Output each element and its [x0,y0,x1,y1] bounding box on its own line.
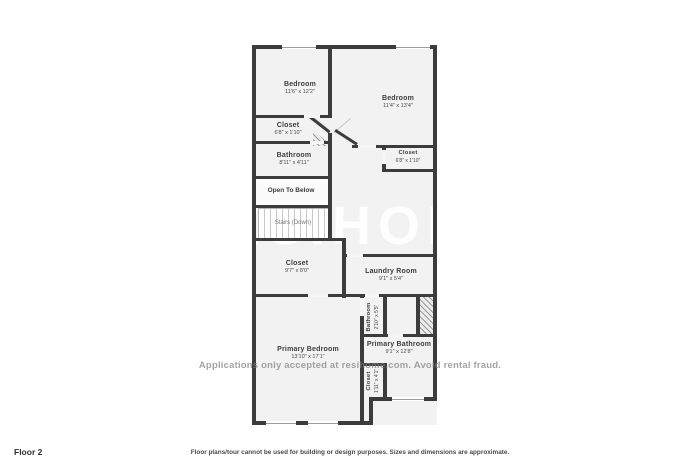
wall [252,176,332,179]
wall [383,294,387,337]
room-label-stairs: Stairs (Down) [275,220,311,228]
door-opening [310,141,324,144]
room-name: Laundry Room [365,267,417,276]
room-dims: 9'1" x 5'4" [365,276,417,283]
watermark-brand: RESIHOME [0,195,700,257]
wall [328,133,332,240]
door-opening [308,294,328,297]
room-label-laundry: Laundry Room 9'1" x 5'4" [365,267,417,283]
window [308,421,338,425]
room-label-closet-middle: Closet 9'7" x 8'0" [285,259,309,275]
room-dims: 6'8" x 1'10" [274,130,301,137]
wall [416,294,420,337]
room-dims: 6'8" x 1'10" [396,158,421,165]
room-dims: 9'1" x 12'8" [367,349,431,356]
room-label-primary-bathroom: Primary Bathroom 9'1" x 12'8" [367,340,431,356]
wall [382,169,437,172]
door-opening [304,115,320,118]
door-opening [365,294,379,297]
window [282,45,316,49]
watermark-fraud-notice: Applications only accepted at resihome.c… [0,360,700,371]
room-name: Closet [285,259,309,268]
wall [433,45,437,401]
wall [342,294,437,297]
window [392,397,424,401]
wall [328,45,332,115]
door-opening [388,334,403,337]
room-label-closet-upper-right: Closet 6'8" x 1'10" [396,150,421,164]
room-label-bathroom-upper: Bathroom 8'11" x 4'11" [277,151,312,167]
door-opening [347,254,363,257]
room-name: Closet [366,369,374,393]
room-label-bedroom-right: Bedroom 11'4" x 13'4" [382,94,414,110]
room-dims: 1'11" x 4'1" [374,369,381,393]
room-label-open-to-below: Open To Below [268,187,315,195]
room-label-closet-upper-left: Closet 6'8" x 1'10" [274,121,301,137]
room-name: Closet [396,150,421,158]
shaft-hatch-area [420,297,433,334]
room-name: Bedroom [382,94,414,103]
wall [342,238,346,298]
door-opening [358,145,376,148]
room-name: Bathroom [277,151,312,160]
room-dims: 11'6" x 12'2" [284,89,316,96]
room-label-bathroom-small: Bathroom 2'10" x 5'5" [366,303,380,332]
room-dims: 8'11" x 4'11" [277,160,312,167]
wall [252,205,332,208]
wall [252,115,332,118]
room-label-bedroom-left: Bedroom 11'6" x 12'2" [284,80,316,96]
room-name: Primary Bathroom [367,340,431,349]
wall [252,238,346,241]
wall [252,294,346,297]
wall-angled [334,129,357,146]
room-name: Primary Bedroom [277,345,339,354]
room-label-primary-bedroom: Primary Bedroom 13'10" x 17'1" [277,345,339,361]
room-dims: 2'10" x 5'5" [374,303,381,332]
room-name: Bathroom [366,303,374,332]
disclaimer-text: Floor plans/tour cannot be used for buil… [0,449,700,456]
floor-plan-page: RESIHOME [0,0,700,467]
room-dims: 11'4" x 13'4" [382,103,414,110]
window [396,45,430,49]
room-name: Bedroom [284,80,316,89]
door-opening [360,298,364,316]
window [266,421,296,425]
room-dims: 9'7" x 8'0" [285,268,309,275]
door-opening [382,150,386,164]
room-label-closet-primary: Closet 1'11" x 4'1" [366,369,380,393]
room-name: Closet [274,121,301,130]
